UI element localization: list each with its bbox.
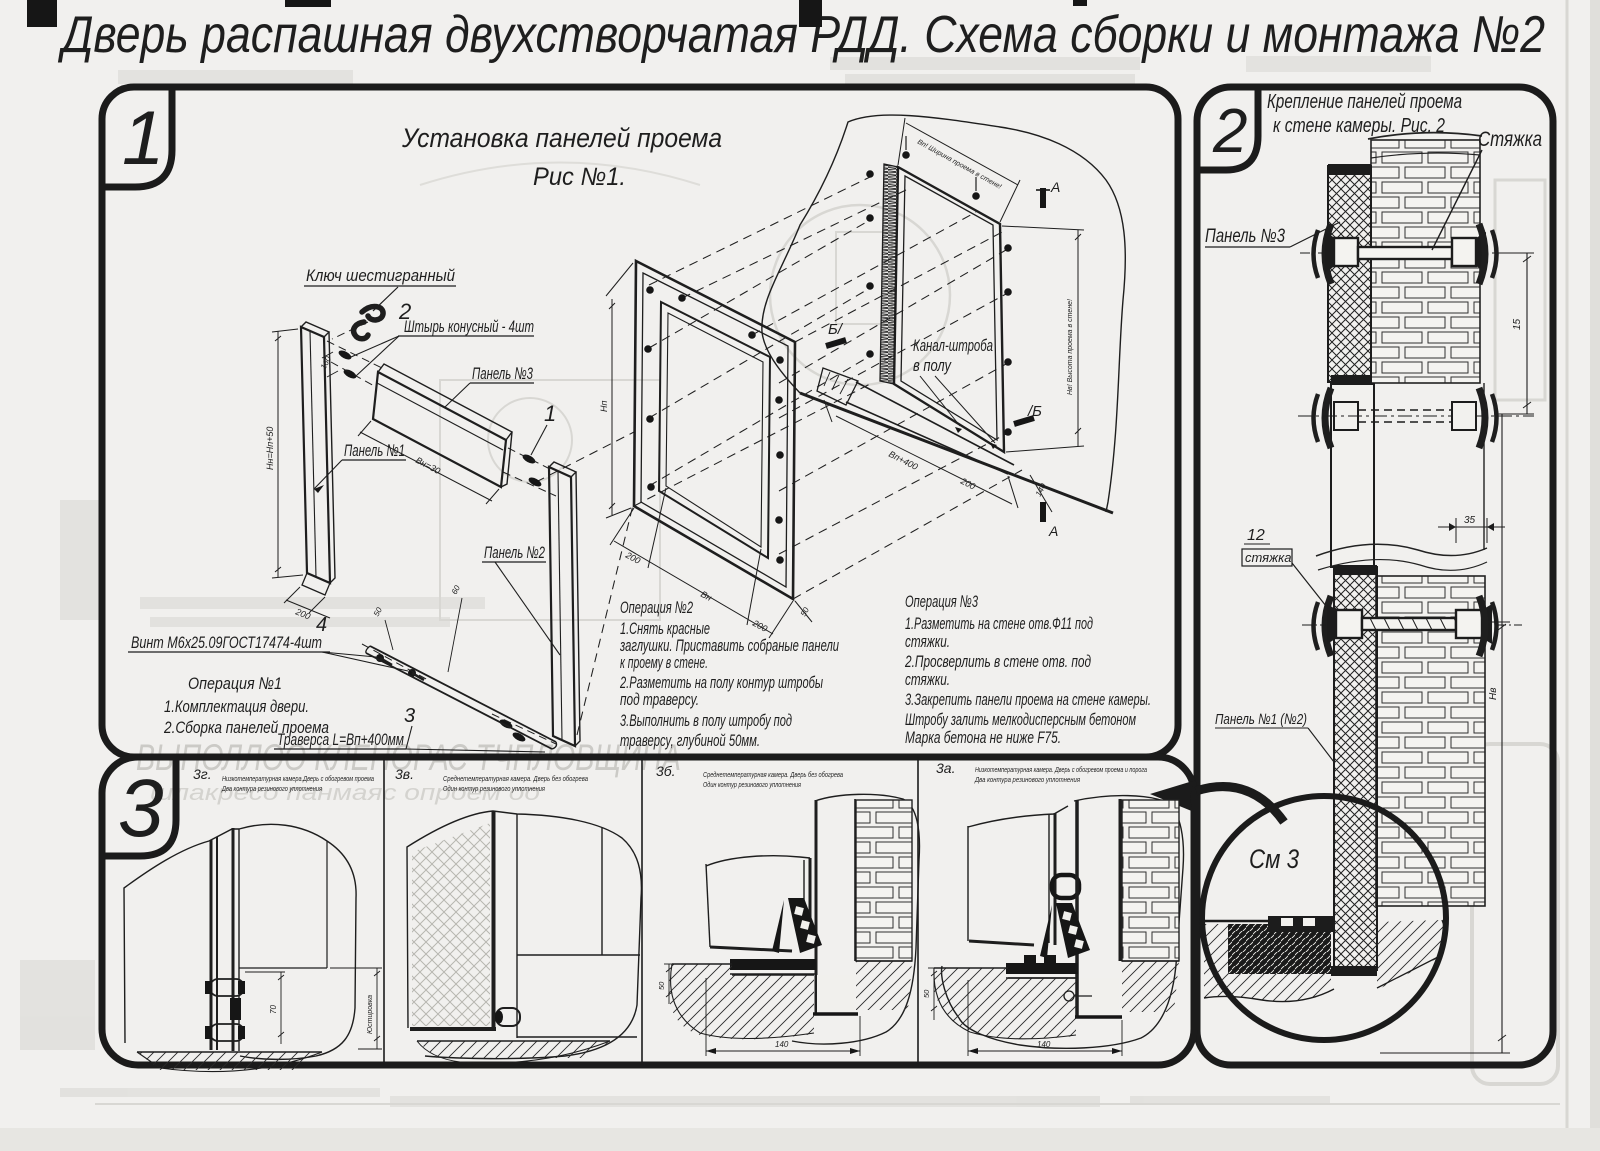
- svg-text:под траверсу.: под траверсу.: [620, 690, 699, 709]
- svg-text:3в.: 3в.: [395, 766, 414, 782]
- svg-text:4: 4: [316, 614, 327, 636]
- svg-text:Панель №1: Панель №1: [344, 441, 405, 460]
- svg-text:Операция №2: Операция №2: [620, 598, 693, 617]
- svg-text:50: 50: [657, 981, 666, 990]
- svg-text:к проему в стене.: к проему в стене.: [620, 653, 708, 672]
- svg-text:Канал-штроба: Канал-штроба: [913, 336, 993, 355]
- svg-text:Панель №1 (№2): Панель №1 (№2): [1215, 711, 1307, 728]
- svg-text:Панель №2: Панель №2: [484, 543, 545, 562]
- svg-text:3: 3: [404, 705, 415, 727]
- svg-text:в полу: в полу: [913, 356, 952, 375]
- svg-text:Низкотемпературная камера.Двер: Низкотемпературная камера.Дверь с обогре…: [222, 774, 374, 783]
- svg-text:Панель №3: Панель №3: [472, 364, 533, 383]
- svg-text:Юстировка: Юстировка: [367, 995, 374, 1034]
- svg-text:140: 140: [775, 1040, 789, 1049]
- svg-text:Установка панелей проема: Установка панелей проема: [401, 123, 722, 153]
- svg-text:Нв: Нв: [1488, 688, 1499, 700]
- svg-text:3: 3: [118, 763, 164, 854]
- svg-text:70: 70: [269, 1005, 278, 1014]
- svg-text:1.Комплектация двери.: 1.Комплектация двери.: [164, 697, 309, 716]
- svg-text:15: 15: [1512, 318, 1523, 330]
- svg-text:Винт М6х25.09ГОСТ17474-4шт: Винт М6х25.09ГОСТ17474-4шт: [131, 634, 322, 652]
- svg-text:Два контура резинового уплотне: Два контура резинового уплотнения: [221, 784, 322, 793]
- svg-text:Б/: Б/: [828, 321, 844, 338]
- svg-text:3а.: 3а.: [936, 760, 955, 776]
- svg-text:3г.: 3г.: [193, 766, 212, 782]
- svg-text:35: 35: [1464, 515, 1476, 526]
- svg-text:Стяжка: Стяжка: [1478, 128, 1542, 151]
- svg-text:1: 1: [544, 401, 556, 426]
- svg-text:Два контура резинового уплотне: Два контура резинового уплотнения: [974, 775, 1080, 784]
- svg-text:Среднетемпературная камера. Дв: Среднетемпературная камера. Дверь без об…: [703, 770, 843, 779]
- svg-text:Нв! Высота проема в стене!: Нв! Высота проема в стене!: [1067, 299, 1074, 395]
- svg-text:Один контур резинового уплотне: Один контур резинового уплотнения: [703, 780, 801, 789]
- svg-text:50: 50: [922, 989, 931, 998]
- svg-text:Марка бетона не ниже F75.: Марка бетона не ниже F75.: [905, 728, 1061, 747]
- svg-text:Среднетемпературная камера. Дв: Среднетемпературная камера. Дверь без об…: [443, 774, 588, 783]
- svg-text:1.Разметить на стене отв.Ф11 п: 1.Разметить на стене отв.Ф11 под: [905, 614, 1093, 633]
- svg-text:3.Выполнить в полу штробу под: 3.Выполнить в полу штробу под: [620, 711, 792, 730]
- svg-text:Траверса L=Вп+400мм: Траверса L=Вп+400мм: [277, 731, 404, 749]
- svg-text:12: 12: [1247, 527, 1265, 544]
- svg-text:Нп: Нп: [599, 401, 609, 412]
- svg-text:2.Просверлить в стене отв. по: 2.Просверлить в стене отв. под: [904, 652, 1091, 671]
- svg-text:Операция №1: Операция №1: [188, 674, 282, 693]
- svg-text:Ключ шестигранный: Ключ шестигранный: [306, 266, 455, 285]
- svg-text:140: 140: [1037, 1040, 1051, 1049]
- svg-text:1: 1: [122, 96, 164, 181]
- svg-text:Панель №3: Панель №3: [1205, 226, 1285, 247]
- svg-text:3б.: 3б.: [656, 763, 676, 779]
- svg-text:Операция №3: Операция №3: [905, 592, 978, 611]
- svg-text:А: А: [1050, 179, 1060, 195]
- svg-text:Штырь конусный - 4шт: Штырь конусный - 4шт: [404, 317, 534, 336]
- svg-text:Рис №1.: Рис №1.: [533, 163, 626, 191]
- svg-text:2: 2: [1212, 97, 1247, 166]
- svg-text:Штробу залить мелкодисперсным: Штробу залить мелкодисперсным бетоном: [905, 710, 1136, 729]
- svg-text:стяжка: стяжка: [1245, 550, 1291, 565]
- svg-text:См 3: См 3: [1249, 844, 1299, 874]
- svg-text:Нн=Нп+50: Нн=Нп+50: [265, 427, 275, 470]
- svg-text:стяжки.: стяжки.: [905, 670, 950, 689]
- svg-text:стяжки.: стяжки.: [905, 632, 950, 651]
- svg-text:Один контур резинового уплотне: Один контур резинового уплотнения: [443, 784, 545, 793]
- svg-text:А: А: [1048, 523, 1058, 539]
- svg-text:траверсу, глубиной 50мм.: траверсу, глубиной 50мм.: [620, 731, 760, 750]
- svg-text:Низкотемпературная камера. Две: Низкотемпературная камера. Дверь с обогр…: [975, 765, 1147, 774]
- svg-text:3.Закрепить панели проема на с: 3.Закрепить панели проема на стене камер…: [905, 690, 1151, 709]
- svg-text:Крепление панелей проема: Крепление панелей проема: [1267, 91, 1462, 113]
